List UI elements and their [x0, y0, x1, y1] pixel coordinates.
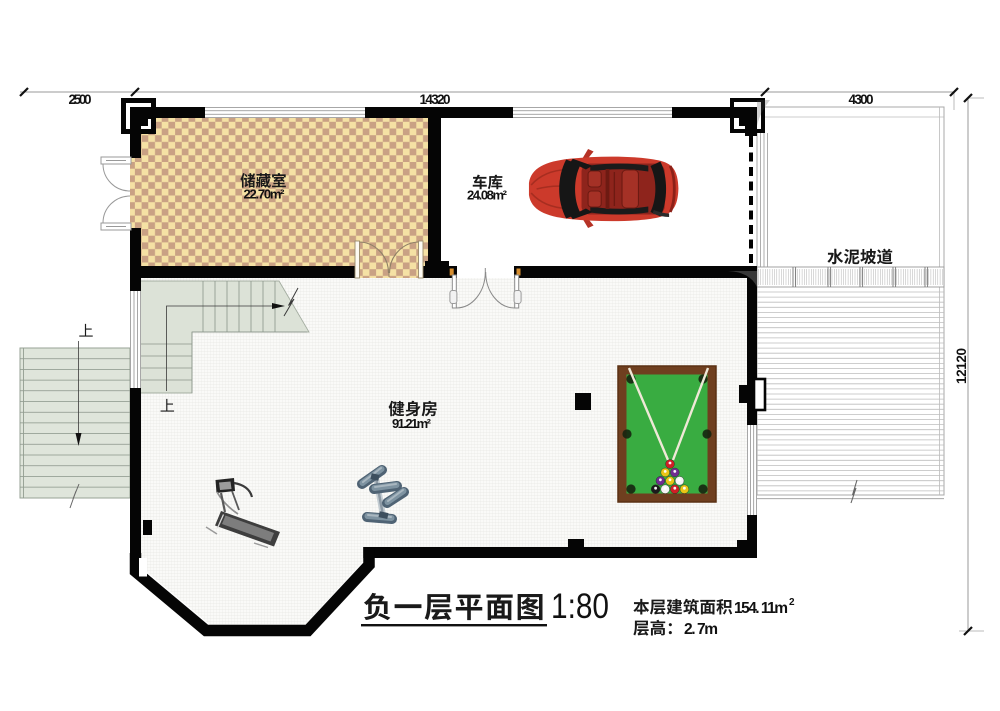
svg-text:154. 11m: 154. 11m	[734, 600, 788, 617]
svg-text:2: 2	[789, 597, 795, 608]
svg-text:14320: 14320	[420, 92, 451, 107]
svg-text:24.08m²: 24.08m²	[467, 188, 508, 203]
svg-text:91.21m²: 91.21m²	[392, 416, 432, 431]
svg-text:1:80: 1:80	[551, 587, 609, 626]
svg-text:22.70m²: 22.70m²	[244, 187, 286, 202]
svg-text:4300: 4300	[849, 92, 874, 107]
svg-text:12120: 12120	[954, 348, 969, 384]
svg-text:2500: 2500	[69, 92, 92, 107]
svg-text:2. 7m: 2. 7m	[684, 621, 718, 638]
